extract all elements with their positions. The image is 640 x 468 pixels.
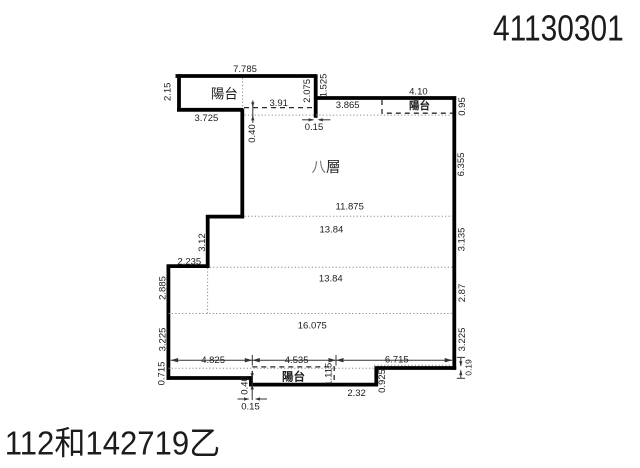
svg-text:0.715: 0.715 <box>156 362 167 386</box>
svg-text:2.32: 2.32 <box>347 388 366 399</box>
svg-text:陽台: 陽台 <box>409 99 430 112</box>
svg-text:3.725: 3.725 <box>195 113 219 124</box>
svg-text:0.40: 0.40 <box>240 376 251 395</box>
svg-text:112和142719乙: 112和142719乙 <box>5 425 220 462</box>
svg-text:1.525: 1.525 <box>319 74 330 98</box>
svg-text:0.15: 0.15 <box>305 122 324 133</box>
svg-text:3.135: 3.135 <box>457 228 468 252</box>
svg-text:6.355: 6.355 <box>456 153 467 177</box>
svg-text:16.075: 16.075 <box>298 321 327 332</box>
svg-text:八層: 八層 <box>312 160 341 176</box>
svg-text:0.95: 0.95 <box>457 97 468 116</box>
svg-text:陽台: 陽台 <box>211 86 238 101</box>
svg-text:3.91: 3.91 <box>269 98 288 109</box>
svg-text:2.235: 2.235 <box>177 257 201 268</box>
svg-text:3.12: 3.12 <box>197 233 208 252</box>
svg-text:13.84: 13.84 <box>319 274 343 285</box>
svg-text:6.715: 6.715 <box>385 354 409 365</box>
svg-text:3.225: 3.225 <box>158 328 169 352</box>
svg-text:11.875: 11.875 <box>336 202 364 213</box>
svg-text:0.15: 0.15 <box>241 401 260 412</box>
svg-text:0.40: 0.40 <box>247 124 258 143</box>
svg-text:3.225: 3.225 <box>457 328 468 352</box>
svg-text:4.10: 4.10 <box>409 86 428 97</box>
svg-text:4.535: 4.535 <box>285 355 309 366</box>
svg-text:1.115: 1.115 <box>324 363 335 386</box>
svg-text:7.785: 7.785 <box>233 64 257 75</box>
svg-text:41130301: 41130301 <box>493 9 624 49</box>
svg-text:13.84: 13.84 <box>320 225 344 236</box>
svg-text:0.19: 0.19 <box>463 359 473 376</box>
svg-text:3.865: 3.865 <box>336 100 360 111</box>
svg-text:4.825: 4.825 <box>201 355 225 366</box>
svg-text:2.15: 2.15 <box>163 83 174 102</box>
svg-text:0.925: 0.925 <box>377 369 388 393</box>
svg-text:2.885: 2.885 <box>158 276 169 300</box>
svg-text:2.87: 2.87 <box>457 284 468 303</box>
svg-text:陽台: 陽台 <box>282 370 305 384</box>
svg-text:2.075: 2.075 <box>302 79 313 103</box>
